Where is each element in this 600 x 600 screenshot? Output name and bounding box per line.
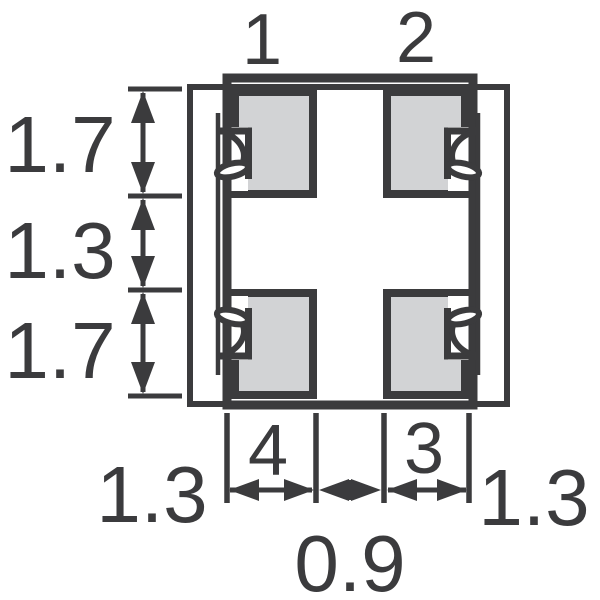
arrowhead-right-1: [284, 479, 314, 501]
arrowhead-up-1: [131, 91, 155, 123]
solder-pads: [235, 92, 465, 395]
pin-2-label: 2: [396, 0, 436, 78]
dim-bottom-right-label: 1.3: [478, 453, 589, 542]
arrowhead-down-2: [131, 256, 155, 288]
pin-3-label: 3: [404, 409, 444, 489]
dim-left-top-label: 1.7: [4, 100, 115, 189]
land-pattern-diagram: 1 2 4 3 1.7 1.3 1.7 1.3 0.9 1.3: [0, 0, 600, 600]
arrowhead-right-2: [351, 479, 381, 501]
arrowhead-left-2: [319, 479, 349, 501]
dim-bottom-left-label: 1.3: [96, 450, 207, 539]
dim-bottom-center-label: 0.9: [294, 519, 405, 600]
pin-1-label: 1: [242, 0, 282, 80]
dimension-left-chain: [128, 89, 182, 396]
pin-4-label: 4: [248, 411, 288, 491]
arrowhead-up-2: [131, 198, 155, 230]
arrowhead-down-1: [131, 162, 155, 194]
dim-left-bottom-label: 1.7: [4, 306, 115, 395]
arrowhead-up-3: [131, 292, 155, 324]
land-pattern-figure: 1 2 4 3 1.7 1.3 1.7 1.3 0.9 1.3: [0, 0, 600, 600]
arrowhead-down-3: [131, 362, 155, 394]
dim-left-middle-label: 1.3: [4, 206, 115, 295]
